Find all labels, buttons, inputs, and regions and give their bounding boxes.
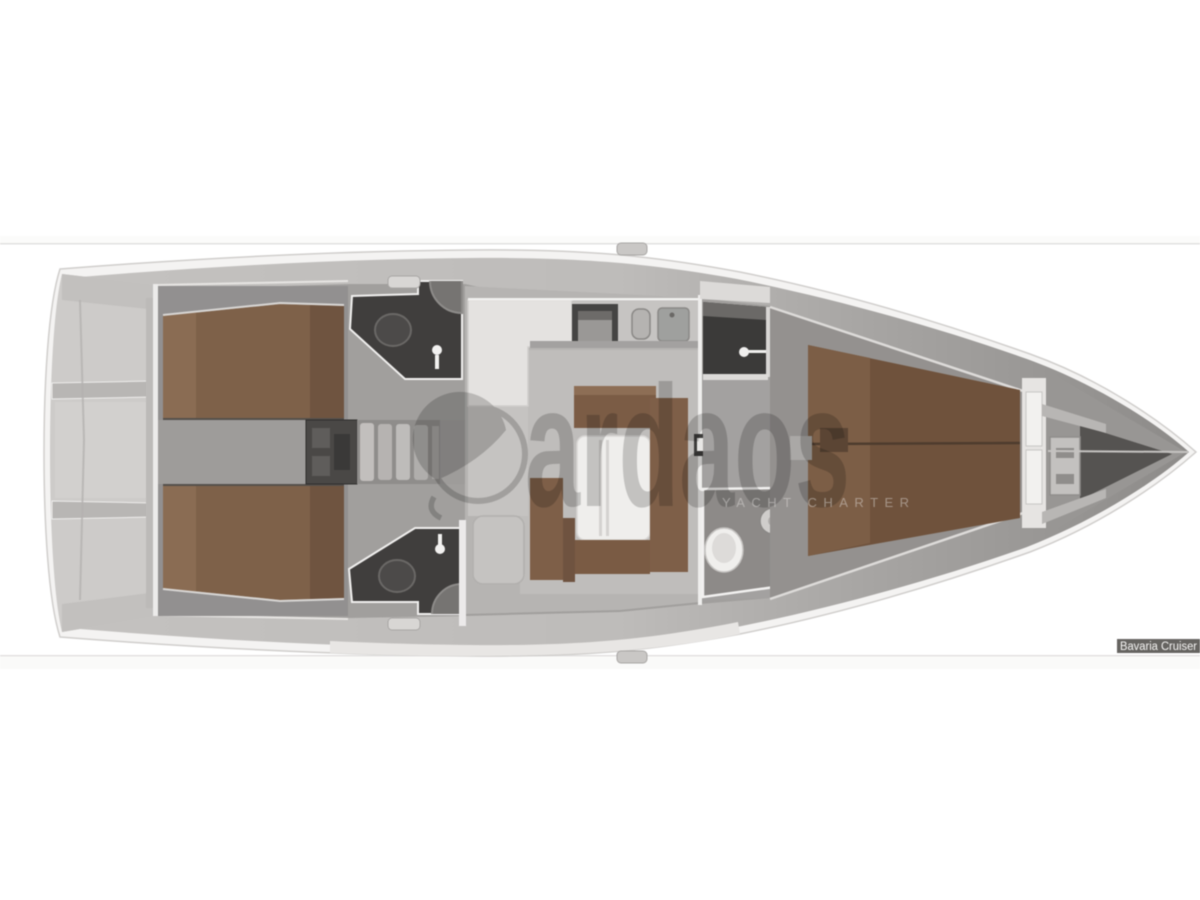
svg-text:Bavaria Cruiser: Bavaria Cruiser: [1120, 641, 1197, 653]
svg-text:YACHT CHARTER: YACHT CHARTER: [722, 495, 916, 510]
svg-text:ardaos: ardaos: [525, 351, 850, 543]
